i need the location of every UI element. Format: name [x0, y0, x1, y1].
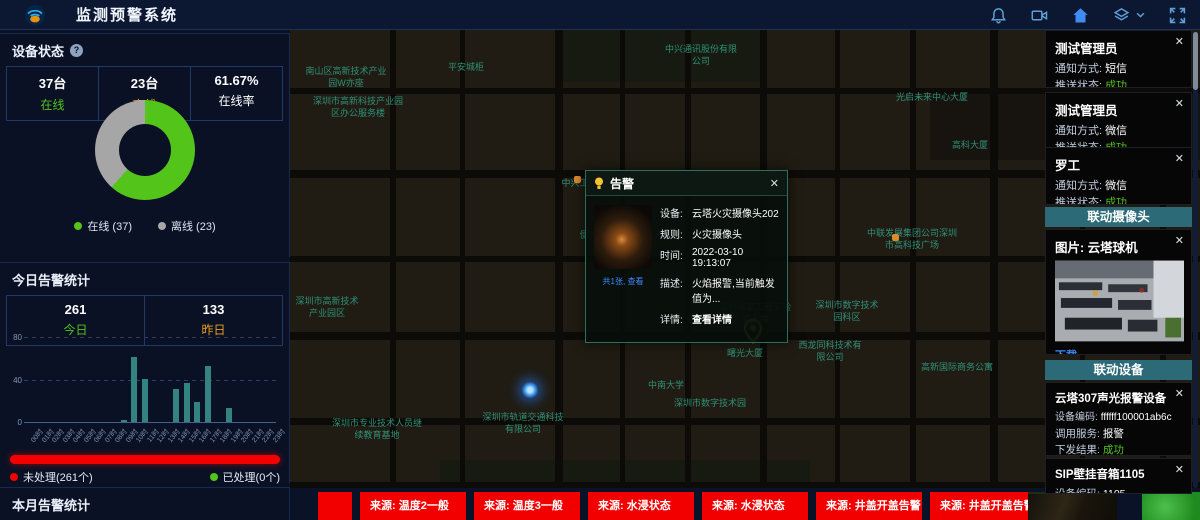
alert-image-thumbnail[interactable] [1142, 492, 1200, 520]
alarm-popup-body: 共1张, 查看 设备:云塔火灾摄像头202 规则:火灾摄像头 时间:2022-0… [586, 196, 787, 342]
home-icon[interactable] [1072, 7, 1089, 24]
stat-online: 37台 在线 [7, 67, 98, 120]
map-label: 光启未来中心大厦 [886, 92, 978, 104]
bar-09时 [121, 420, 127, 422]
map-label: 曙光大厦 [718, 348, 772, 360]
field-description: 描述:火焰报警,当前触发值为... [660, 275, 779, 305]
ticker-alert[interactable]: 来源: 井盖开盖告警 [816, 492, 922, 520]
header-toolbar [990, 0, 1186, 30]
map-label: 中南大学 [638, 380, 694, 392]
camera-snapshot-image[interactable] [1055, 260, 1184, 342]
notification-card: ✕ 罗工 通知方式:微信 推送状态:成功 [1045, 147, 1192, 205]
map-label: 南山区高新技术产业园W亦座 [304, 66, 388, 89]
map-label: 中联发展集团公司深圳市高科技广场 [864, 228, 960, 251]
bell-icon[interactable] [990, 7, 1007, 24]
ticker-alert[interactable]: 来源: 水浸状态 [702, 492, 808, 520]
alarm-popup: 告警 ✕ 共1张, 查看 设备:云塔火灾摄像头202 规则:火灾摄像头 时间:2… [585, 170, 788, 343]
download-link[interactable]: 下载 [1055, 347, 1182, 355]
legend-offline: 离线 (23) [158, 218, 216, 234]
ticker-alert[interactable]: 来源: 井盖开盖告警 [930, 492, 1036, 520]
linked-camera-header[interactable]: 联动摄像头 [1045, 207, 1192, 227]
bar-17时 [205, 366, 211, 422]
bar-19时 [226, 408, 232, 422]
close-icon[interactable]: ✕ [770, 177, 779, 190]
today-alarm-panel: 今日告警统计 261 今日 133 昨日 80 40 0 00时01时02时03… [0, 262, 290, 483]
alarm-fields: 设备:云塔火灾摄像头202 规则:火灾摄像头 时间:2022-03-10 19:… [660, 205, 779, 332]
today-bar-plot: 80 40 0 [24, 337, 276, 423]
today-alarm-title: 今日告警统计 [12, 270, 90, 289]
map-label: 深圳市数字技术园 [662, 398, 758, 410]
y-tick: 0 [8, 418, 22, 427]
video-camera-icon[interactable] [1031, 7, 1048, 24]
view-detail-link[interactable]: 查看详情 [692, 311, 732, 326]
device-name: SIP壁挂音箱1105 [1055, 466, 1182, 482]
linked-device-header[interactable]: 联动设备 [1045, 360, 1192, 380]
close-icon[interactable]: ✕ [1175, 97, 1184, 110]
app-header: 监测预警系统 [0, 0, 1200, 30]
dashboard: 监测预警系统 [0, 0, 1200, 520]
camera-card-title: 图片: 云塔球机 [1055, 237, 1182, 256]
bar-10时 [131, 357, 137, 422]
map-label: 深圳市专业技术人员继续教育基地 [328, 418, 426, 441]
ticker-alert[interactable]: 来源: 温度2一般 [360, 492, 466, 520]
close-icon[interactable]: ✕ [1175, 463, 1184, 476]
scrollbar-thumb[interactable] [1193, 32, 1198, 90]
alert-ticker-tiles: 来源: 温度2一般来源: 温度3一般来源: 水浸状态来源: 水浸状态来源: 井盖… [318, 492, 1036, 520]
device-status-panel: 设备状态 ? 37台 在线 23台 离线 61.67% 在线率 在线 (37) … [0, 33, 290, 257]
close-icon[interactable]: ✕ [1175, 35, 1184, 48]
progress-legend: 未处理(261个) 已处理(0个) [10, 469, 280, 485]
y-tick: 40 [8, 376, 22, 385]
right-panel-scrollbar[interactable] [1193, 32, 1198, 488]
ticker-alert[interactable]: 来源: 水浸状态 [588, 492, 694, 520]
ticker-alert[interactable]: 来源: 温度3一般 [474, 492, 580, 520]
ticker-alert[interactable] [318, 492, 352, 520]
bar-15时 [184, 383, 190, 422]
bulb-icon [594, 177, 604, 190]
notify-name: 罗工 [1055, 155, 1182, 174]
poi-icon [574, 176, 581, 183]
legend-processed: 已处理(0个) [210, 469, 280, 485]
legend-online: 在线 (37) [74, 218, 132, 234]
map-label: 高新国际商务公寓 [910, 362, 1004, 374]
field-detail: 详情:查看详情 [660, 311, 779, 326]
month-alarm-panel: 本月告警统计 763 1146 [0, 487, 290, 520]
layers-icon[interactable] [1113, 7, 1130, 24]
y-tick: 80 [8, 333, 22, 342]
app-logo-icon [24, 4, 46, 26]
unprocessed-progress-bar [10, 455, 280, 464]
map-label: 平安城柜 [438, 62, 494, 74]
device-status-title: 设备状态 [12, 41, 64, 60]
chevron-down-icon[interactable] [1136, 11, 1145, 20]
field-time: 时间:2022-03-10 19:13:07 [660, 247, 779, 269]
device-status-donut [95, 100, 195, 200]
linked-device-card: ✕ 云塔307声光报警设备 设备编码:ffffff100001ab6c 调用服务… [1045, 382, 1192, 456]
page-title: 监测预警系统 [76, 4, 178, 25]
close-icon[interactable]: ✕ [1175, 152, 1184, 165]
alarm-popup-title: 告警 [610, 175, 634, 192]
bar-16时 [194, 402, 200, 422]
legend-unprocessed: 未处理(261个) [10, 469, 93, 485]
today-bar-xaxis: 00时01时02时03时04时05时06时07时08时09时10时11时12时1… [24, 425, 276, 447]
donut-legend: 在线 (37) 离线 (23) [0, 218, 290, 234]
fullscreen-icon[interactable] [1169, 7, 1186, 24]
linked-camera-card: ✕ 图片: 云塔球机 下载 [1045, 229, 1192, 355]
alert-image-thumbnail[interactable] [1028, 492, 1117, 520]
close-icon[interactable]: ✕ [1175, 234, 1184, 247]
map-label: 深圳市数字技术园科区 [812, 300, 882, 323]
notify-name: 测试管理员 [1055, 100, 1182, 119]
notification-card: ✕ 测试管理员 通知方式:微信 推送状态:成功 [1045, 92, 1192, 150]
close-icon[interactable]: ✕ [1175, 387, 1184, 400]
month-alarm-title: 本月告警统计 [12, 495, 90, 514]
bar-11时 [142, 379, 148, 422]
help-icon[interactable]: ? [70, 44, 83, 57]
alarm-snapshot-image[interactable] [594, 205, 652, 269]
device-name: 云塔307声光报警设备 [1055, 390, 1182, 406]
map-label: 深圳市高新技术产业园区 [292, 296, 362, 319]
map-label: 深圳市轨道交通科技有限公司 [482, 412, 564, 435]
map-label: 深圳市高新科技产业园区办公服务楼 [310, 96, 406, 119]
poi-icon [892, 234, 899, 241]
map-label: 西龙同科技术有限公司 [796, 340, 864, 363]
bar-14时 [173, 389, 179, 422]
field-rule: 规则:火灾摄像头 [660, 226, 779, 241]
field-device: 设备:云塔火灾摄像头202 [660, 205, 779, 220]
notification-card: ✕ 测试管理员 通知方式:短信 推送状态:成功 [1045, 30, 1192, 88]
alarm-snapshot-caption[interactable]: 共1张, 查看 [594, 276, 652, 287]
map-label: 高科大厦 [942, 140, 998, 152]
alarm-popup-header: 告警 ✕ [586, 171, 787, 196]
alert-location-dot[interactable] [521, 381, 539, 399]
stat-online-rate: 61.67% 在线率 [190, 67, 282, 120]
linked-device-card: ✕ SIP壁挂音箱1105 设备编码:1105 [1045, 458, 1192, 494]
map-label: 中兴通讯股份有限公司 [662, 44, 740, 67]
notify-name: 测试管理员 [1055, 38, 1182, 57]
